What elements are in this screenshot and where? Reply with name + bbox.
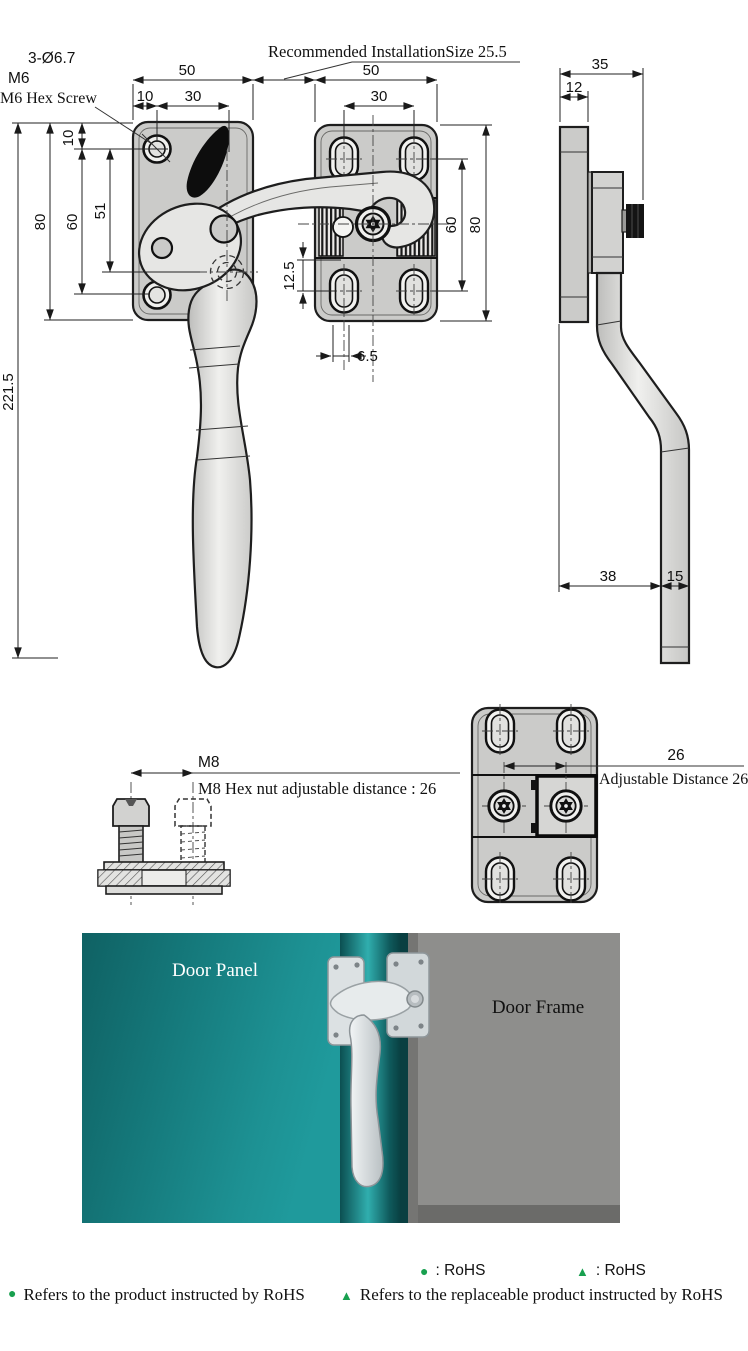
install-note-leader: [284, 62, 520, 79]
rohs-desc-triangle-label: Refers to the replaceable product instru…: [360, 1285, 723, 1305]
install-note: Recommended InstallationSize 25.5: [268, 42, 507, 61]
dim-side-handle-width: 15: [667, 568, 684, 585]
dim-right-slot-vspacing: 60: [443, 217, 460, 234]
dim-left-hole-spacing: 30: [185, 88, 202, 105]
dim-right-slot-spacing: 30: [371, 88, 388, 105]
dimension-drawing: 50 50 Recommended InstallationSize 25.5 …: [0, 0, 748, 920]
thread-label: M6: [8, 70, 30, 87]
dim-left-plate-height: 80: [32, 214, 49, 231]
adjustable-note: Adjustable Distance 26: [599, 771, 748, 788]
dim-left-plate-width: 50: [179, 62, 196, 79]
front-view-dimensions: 50 50 Recommended InstallationSize 25.5 …: [0, 42, 520, 658]
rohs-desc-dot-label: Refers to the product instructed by RoHS: [23, 1285, 304, 1305]
rohs-desc-dot: ● Refers to the product instructed by Ro…: [8, 1285, 305, 1305]
dim-edge-offset: 10: [137, 88, 154, 105]
door-frame-label: Door Frame: [492, 997, 584, 1018]
m8-note: M8 Hex nut adjustable distance : 26: [198, 779, 436, 798]
side-plate: [560, 127, 588, 322]
m8-label: M8: [198, 754, 220, 771]
m8-stud-detail: M8 M8 Hex nut adjustable distance : 26: [98, 754, 460, 905]
door-panel-label: Door Panel: [172, 960, 258, 981]
rohs-key-dot: ● : RoHS: [420, 1262, 485, 1280]
dim-adjustable-distance: 26: [667, 747, 684, 764]
rohs-dot-icon: ●: [8, 1288, 16, 1302]
dim-total-length: 221.5: [0, 373, 17, 411]
adjustable-plate-detail: 26 Adjustable Distance 26: [472, 704, 748, 906]
dim-top-hole-offset: 10: [60, 130, 77, 147]
hole-spec-label: 3-Ø6.7: [28, 50, 75, 67]
rohs-dot-icon: ●: [420, 1264, 428, 1278]
side-view: 35 12 38 15: [559, 56, 689, 663]
dim-pivot-offset: 51: [92, 203, 109, 220]
rohs-key-triangle: ▲ : RoHS: [576, 1262, 646, 1280]
dim-side-offset: 38: [600, 568, 617, 585]
dim-right-plate-height: 80: [467, 217, 484, 234]
side-knob: [626, 204, 644, 238]
side-handle: [597, 273, 689, 663]
dim-left-hole-vspacing: 60: [64, 214, 81, 231]
rohs-key-dot-label: : RoHS: [435, 1262, 485, 1280]
handle-grip: [188, 270, 256, 668]
dim-side-plate-thickness: 12: [566, 79, 583, 96]
rohs-triangle-icon: ▲: [340, 1289, 353, 1302]
rohs-desc-triangle: ▲ Refers to the replaceable product inst…: [340, 1285, 723, 1305]
dim-side-depth: 35: [592, 56, 609, 73]
side-bracket: [592, 172, 623, 273]
screw-callout-label: M6 Hex Screw: [0, 90, 97, 107]
technical-drawing-page: 50 50 Recommended InstallationSize 25.5 …: [0, 0, 748, 1351]
installation-render: Door Panel Door Frame: [82, 933, 620, 1223]
dim-slot-bottom-offset: 12.5: [281, 261, 298, 290]
dim-slot-offset-h: 6.5: [357, 348, 378, 365]
rohs-key-triangle-label: : RoHS: [596, 1262, 646, 1280]
rohs-triangle-icon: ▲: [576, 1265, 589, 1278]
dim-right-plate-width: 50: [363, 62, 380, 79]
